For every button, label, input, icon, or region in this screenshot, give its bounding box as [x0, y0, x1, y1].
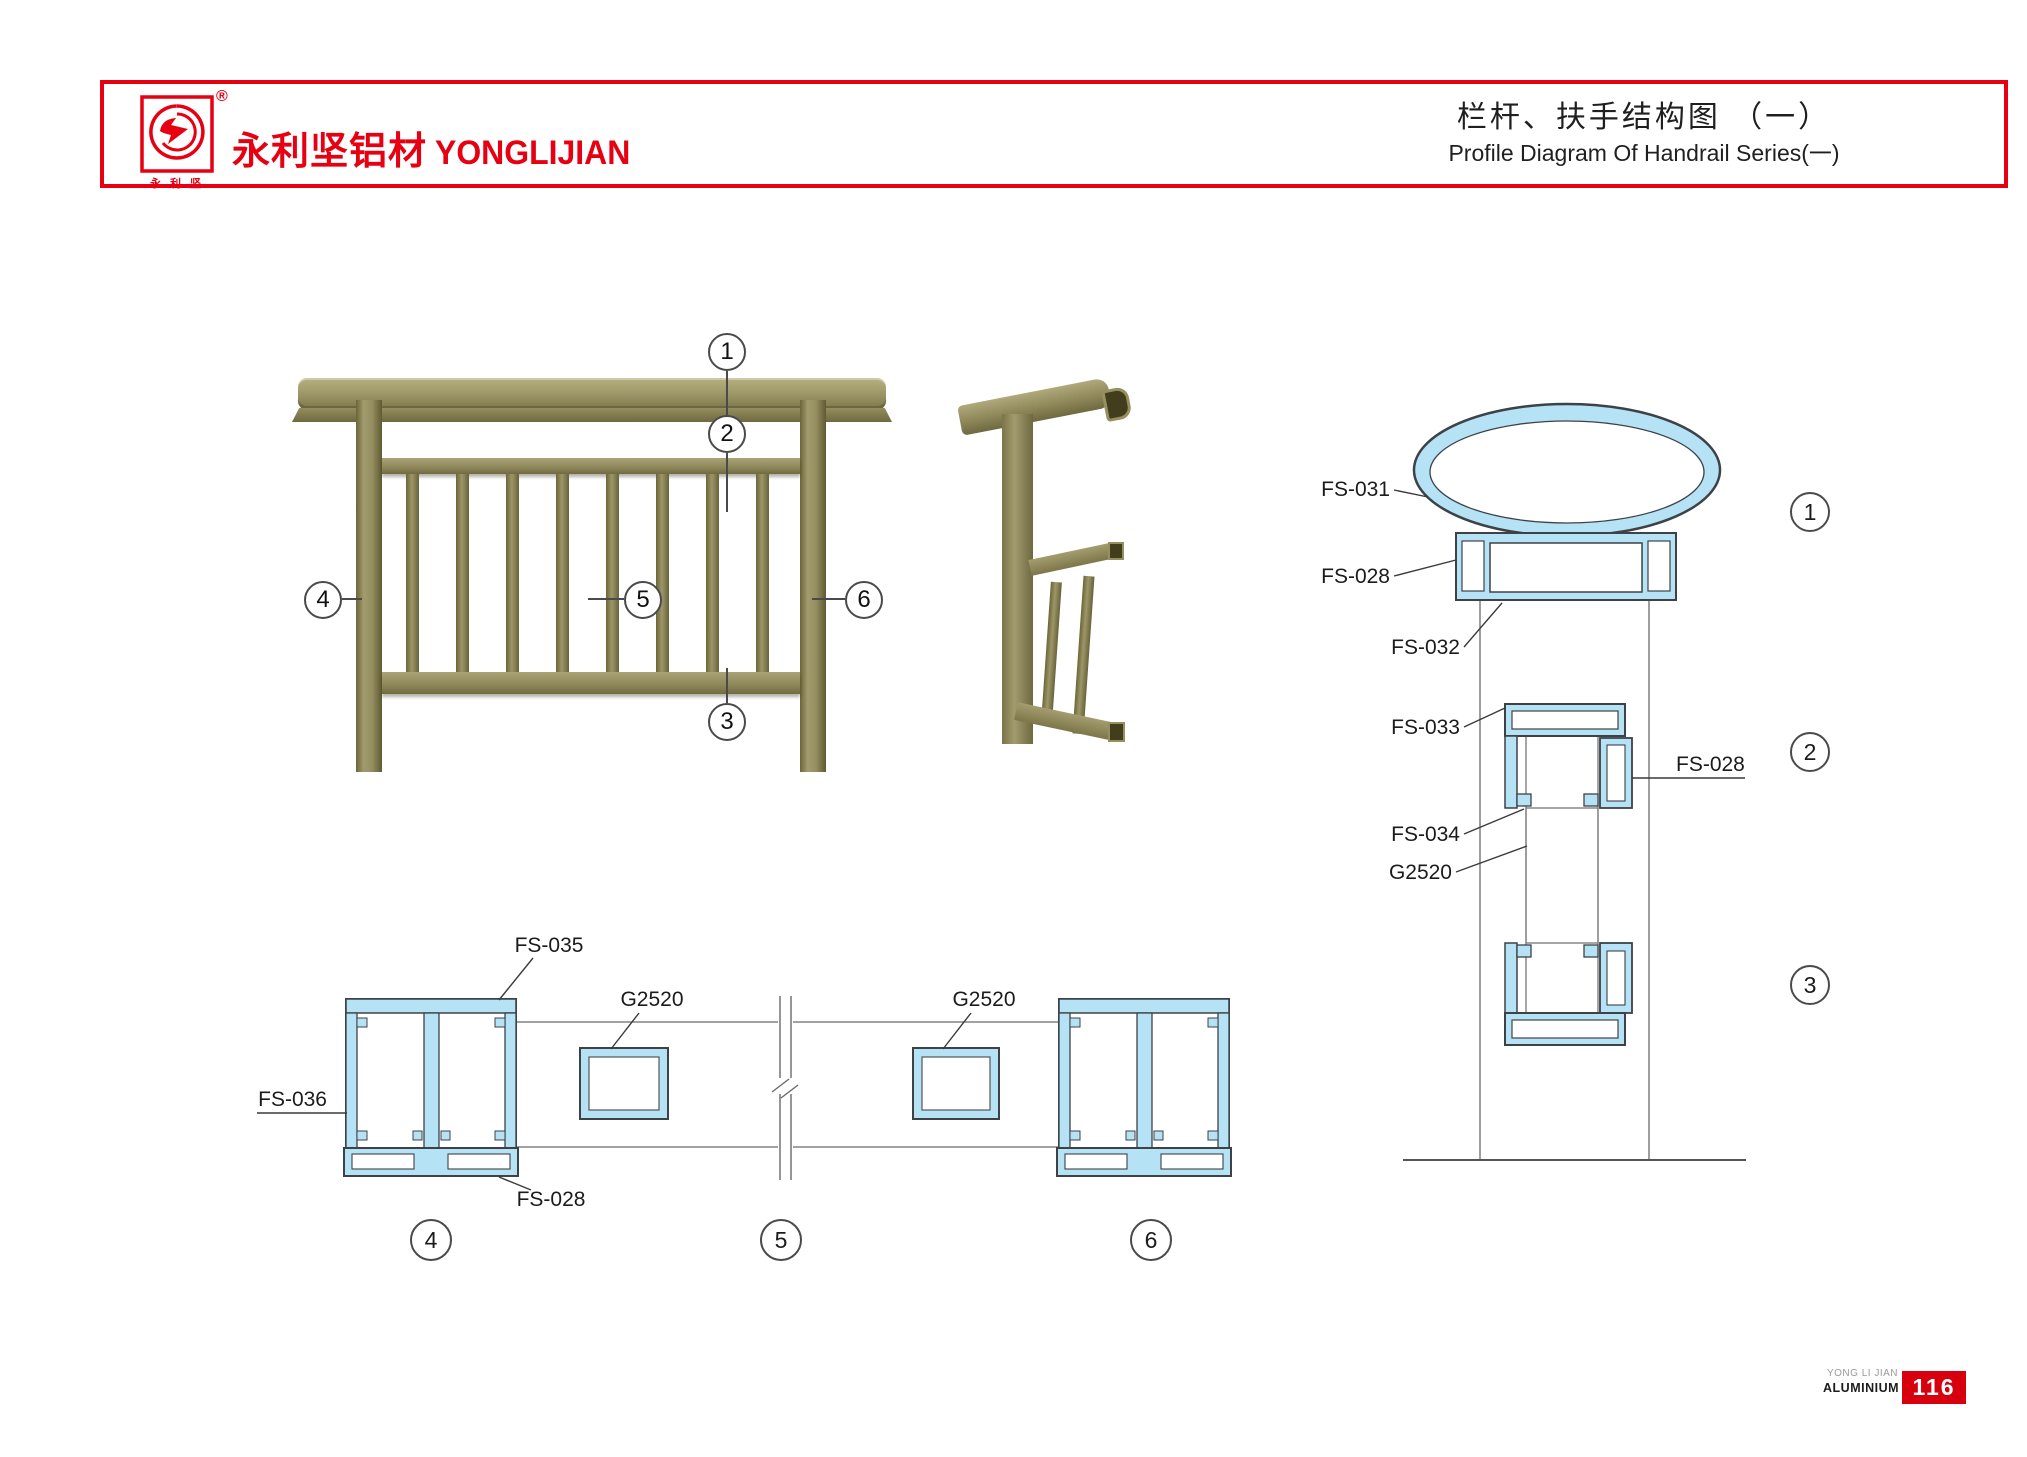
brand-logo: 永 利 坚 — [140, 95, 214, 187]
handrail-side-render — [957, 377, 1112, 435]
post-profile-section-left — [344, 999, 518, 1176]
detail-6-number: 6 — [1145, 1227, 1158, 1253]
railing-front-view-render — [292, 370, 892, 772]
leader-line — [726, 453, 728, 512]
callout-4-number: 4 — [316, 586, 329, 614]
vertical-section-drawing: FS-031 FS-028 FS-032 FS-033 FS-028 FS-03… — [1300, 380, 1880, 1180]
baluster-side-render — [1041, 582, 1062, 722]
detail-circle-5: 5 — [761, 1220, 801, 1260]
detail-4-number: 4 — [425, 1227, 438, 1253]
detail-circle-3: 3 — [1791, 966, 1829, 1004]
right-post-render — [800, 400, 826, 772]
baluster-side-render — [1073, 576, 1095, 734]
detail-circle-4: 4 — [411, 1220, 451, 1260]
footer-brand-line1: YONG LI JIAN — [1823, 1369, 1898, 1379]
callout-2-number: 2 — [720, 420, 733, 448]
callout-4: 4 — [304, 581, 342, 619]
callout-2: 2 — [708, 415, 746, 453]
baluster-render — [606, 474, 619, 672]
footer-brand-line2: ALUMINIUM — [1823, 1382, 1898, 1395]
brand-logo-icon — [140, 95, 214, 173]
brand-name-cn: 永利坚铝材 — [232, 131, 427, 173]
post-side-render — [1002, 414, 1033, 744]
detail-1-number: 1 — [1804, 499, 1817, 525]
detail-circle-1: 1 — [1791, 493, 1829, 531]
callout-5-number: 5 — [636, 586, 649, 614]
logo-caption: 永 利 坚 — [140, 175, 214, 191]
post-construction-lines — [1403, 600, 1746, 1160]
label-fs028-post: FS-028 — [517, 1188, 586, 1211]
leader-line — [588, 598, 624, 600]
footer-brand: YONG LI JIAN ALUMINIUM — [1823, 1369, 1898, 1395]
brand-name: 永利坚铝材YONGLIJIAN — [232, 120, 643, 175]
detail-3-number: 3 — [1804, 972, 1817, 998]
label-g2520-right: G2520 — [952, 988, 1015, 1011]
leader-line — [726, 668, 728, 703]
detail-5-number: 5 — [775, 1227, 788, 1253]
detail-circle-6: 6 — [1131, 1220, 1171, 1260]
callout-1: 1 — [708, 333, 746, 371]
bottom-rail-profile-section — [1505, 943, 1632, 1045]
label-fs033: FS-033 — [1391, 716, 1460, 739]
detail-2-number: 2 — [1804, 739, 1817, 765]
label-fs032: FS-032 — [1391, 636, 1460, 659]
leader-line — [812, 598, 845, 600]
page-number-badge: 116 — [1902, 1371, 1966, 1404]
label-g2520-left: G2520 — [620, 988, 683, 1011]
break-lines — [772, 996, 798, 1180]
callout-3-number: 3 — [720, 708, 733, 736]
label-fs036: FS-036 — [258, 1088, 327, 1111]
bottom-rail-end-cap-render — [1108, 722, 1125, 742]
bottom-rail-render — [382, 672, 800, 694]
railing-side-view-render — [958, 384, 1158, 752]
label-fs028-mid: FS-028 — [1676, 753, 1745, 776]
baluster-render — [556, 474, 569, 672]
page-title-en: Profile Diagram Of Handrail Series(一) — [1344, 136, 1944, 170]
baluster-profile-section-right — [913, 1048, 999, 1119]
handrail-end-cap-render — [1101, 386, 1133, 422]
mid-rail-profile-section — [1505, 704, 1632, 808]
baluster-render — [656, 474, 669, 672]
catalog-page: 永 利 坚 ® 永利坚铝材YONGLIJIAN 栏杆、扶手结构图 （一） Pro… — [0, 0, 2027, 1457]
baluster-render — [406, 474, 419, 672]
handrail-top-render — [298, 378, 886, 410]
callout-3: 3 — [708, 703, 746, 741]
label-fs028-rail: FS-028 — [1321, 565, 1390, 588]
leader-line — [726, 371, 728, 420]
callout-6: 6 — [845, 581, 883, 619]
label-fs031: FS-031 — [1321, 478, 1390, 501]
callout-6-number: 6 — [857, 586, 870, 614]
baluster-render — [506, 474, 519, 672]
baluster-render — [706, 474, 719, 672]
mid-rail-render — [382, 458, 800, 474]
callout-5: 5 — [624, 581, 662, 619]
leader-line — [342, 598, 362, 600]
mid-rail-end-cap-render — [1108, 542, 1124, 560]
registered-mark: ® — [216, 88, 228, 106]
baluster-profile-section-left — [580, 1048, 668, 1119]
callout-1-number: 1 — [720, 338, 733, 366]
plan-section-drawing: FS-035 FS-036 FS-028 G2520 G2520 4 5 6 — [230, 920, 1290, 1280]
post-profile-section-right — [1057, 999, 1231, 1176]
label-fs034: FS-034 — [1391, 823, 1460, 846]
page-title: 栏杆、扶手结构图 （一） Profile Diagram Of Handrail… — [1344, 100, 1944, 170]
page-title-cn: 栏杆、扶手结构图 （一） — [1344, 100, 1944, 136]
baluster-render — [456, 474, 469, 672]
label-g2520-mid: G2520 — [1389, 861, 1452, 884]
mid-rail-side-render — [1028, 543, 1113, 576]
baluster-render — [756, 474, 769, 672]
page-number: 116 — [1912, 1374, 1955, 1401]
handrail-profile-section — [1414, 404, 1720, 600]
header: 永 利 坚 ® 永利坚铝材YONGLIJIAN 栏杆、扶手结构图 （一） Pro… — [100, 80, 2008, 188]
label-fs035: FS-035 — [515, 934, 584, 957]
left-post-render — [356, 400, 382, 772]
brand-name-en: YONGLIJIAN — [435, 134, 630, 173]
detail-circle-2: 2 — [1791, 733, 1829, 771]
